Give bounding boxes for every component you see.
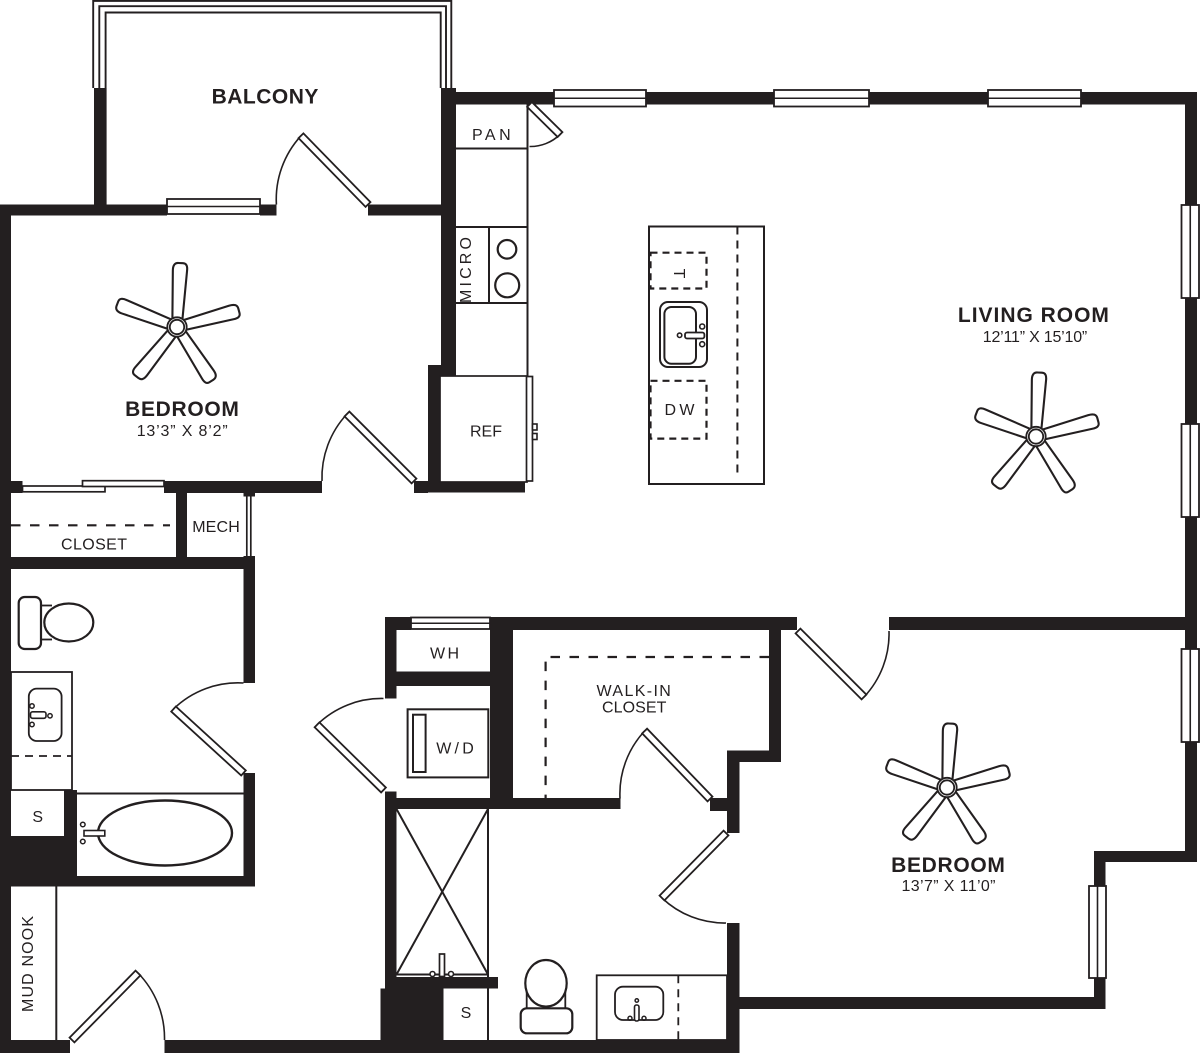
svg-text:13’3” X 8’2”: 13’3” X 8’2” [137,423,228,440]
svg-text:S: S [461,1005,472,1022]
svg-text:MUD NOOK: MUD NOOK [20,916,37,1012]
svg-text:CLOSET: CLOSET [61,536,127,553]
svg-text:13’7” X 11’0”: 13’7” X 11’0” [902,878,996,895]
svg-text:BALCONY: BALCONY [212,85,319,108]
svg-text:12’11” X 15’10”: 12’11” X 15’10” [983,329,1088,346]
svg-text:W/D: W/D [436,741,474,758]
svg-text:T: T [670,269,687,279]
svg-text:S: S [32,809,43,826]
svg-text:BEDROOM: BEDROOM [125,398,239,421]
svg-text:CLOSET: CLOSET [602,700,667,717]
svg-text:MECH: MECH [192,519,240,536]
svg-text:WH: WH [430,646,459,663]
svg-text:LIVING ROOM: LIVING ROOM [958,304,1109,327]
svg-text:REF: REF [470,424,502,441]
svg-text:BEDROOM: BEDROOM [891,854,1005,877]
svg-text:PAN: PAN [472,127,511,144]
svg-text:DW: DW [665,402,696,419]
svg-text:MICRO: MICRO [458,237,475,303]
